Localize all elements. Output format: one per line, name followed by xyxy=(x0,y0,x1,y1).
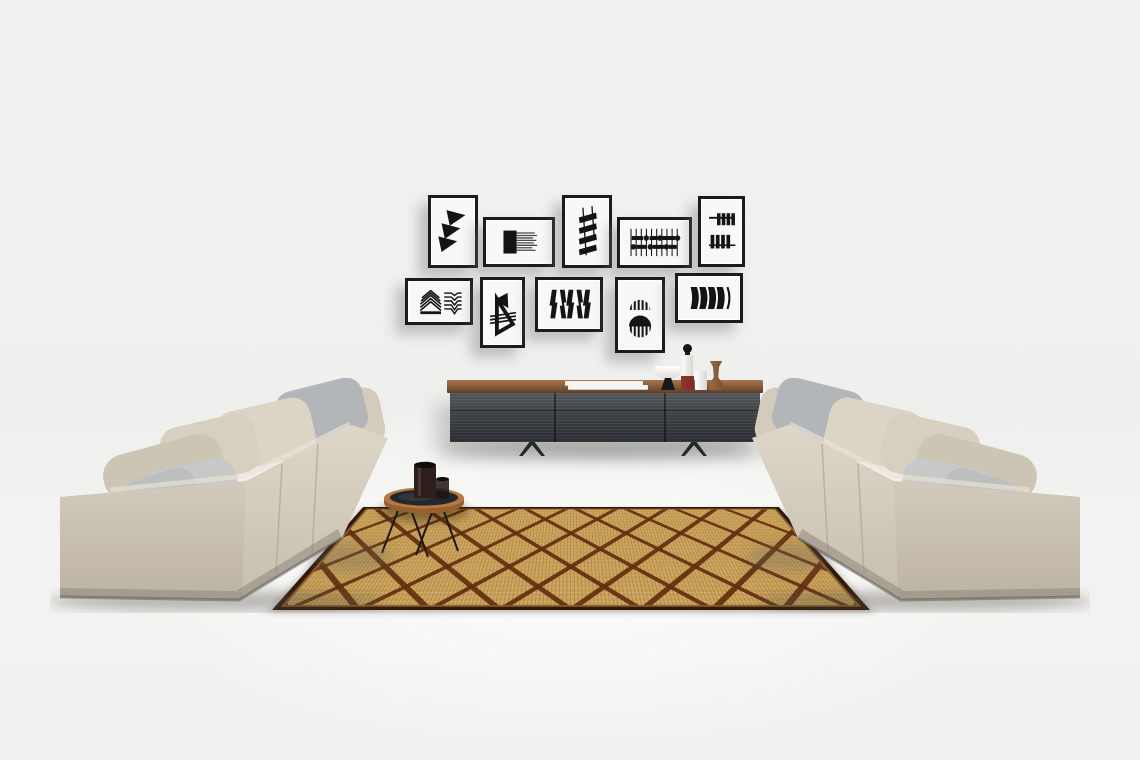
art-frame-8 xyxy=(535,277,603,332)
ink-block-art-icon xyxy=(492,224,546,260)
sail-art-icon xyxy=(487,286,519,339)
bowl-cup xyxy=(655,366,681,379)
ladder-art-icon xyxy=(569,204,605,259)
cylinder-vase xyxy=(695,371,707,390)
blades-art-icon xyxy=(684,280,735,316)
chevron-waves-art-icon xyxy=(414,285,465,319)
table-vase xyxy=(414,462,436,498)
art-frame-7 xyxy=(480,277,525,348)
kinked-bars-art-icon xyxy=(544,284,595,324)
sofa-right: Beige fabric sofa (right) xyxy=(740,378,1090,613)
combs-art-icon xyxy=(705,205,739,258)
abacus-art-icon xyxy=(626,224,683,261)
art-frame-6 xyxy=(405,278,473,325)
book xyxy=(568,385,648,390)
art-frame-4 xyxy=(617,217,692,268)
sofa-left: Beige fabric sofa (left) xyxy=(50,378,400,613)
art-frame-1 xyxy=(428,195,478,268)
turned-wood-vessel xyxy=(709,361,723,390)
striped-circles-art-icon xyxy=(622,286,658,343)
bottle-body xyxy=(682,355,693,377)
stopper-bottle xyxy=(681,344,694,390)
art-frame-5 xyxy=(698,196,745,267)
art-frame-2 xyxy=(483,217,555,267)
book-stack xyxy=(565,381,647,390)
living-room-photo: Beige fabric sofa (left) Beige fabric so… xyxy=(0,0,1140,760)
sideboard-shadow xyxy=(441,442,771,458)
bottle-red-band xyxy=(681,376,694,390)
sideboard-drawer-seam xyxy=(450,410,760,411)
sideboard-decor xyxy=(447,340,763,392)
pennants-art-icon xyxy=(435,204,471,259)
art-frame-3 xyxy=(562,195,612,268)
sideboard-body xyxy=(450,393,760,442)
table-glass-cup xyxy=(436,477,449,499)
art-frame-10 xyxy=(675,273,743,323)
sideboard-door-seam xyxy=(664,393,666,442)
pedestal-bowl xyxy=(655,366,681,390)
sideboard-door-seam xyxy=(554,393,556,442)
bowl-base xyxy=(661,378,675,390)
